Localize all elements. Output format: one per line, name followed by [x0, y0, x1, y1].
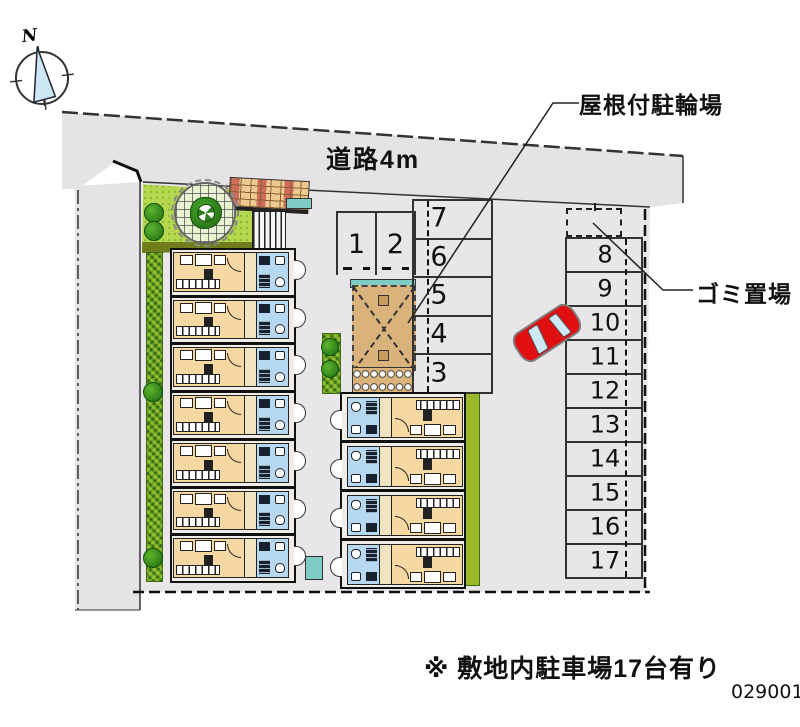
- unit-furniture: [195, 254, 212, 266]
- garbage-area: [566, 208, 622, 237]
- unit-furniture: [214, 494, 226, 504]
- pergola-tree-circle: [174, 182, 236, 244]
- bath-fixture: [259, 542, 270, 551]
- parking-stall-number: 4: [422, 318, 456, 349]
- parking-stall-number: 5: [422, 280, 456, 311]
- toilet-icon: [275, 420, 285, 430]
- parking-stall: 17: [567, 543, 641, 577]
- unit-bathroom: [256, 252, 289, 292]
- unit-main-room: [391, 495, 463, 536]
- unit-kitchen-counter: [176, 422, 220, 432]
- unit-bathroom: [347, 397, 380, 438]
- unit-furniture: [195, 445, 212, 457]
- bath-fixture: [366, 474, 377, 483]
- parking-stall: 7: [414, 201, 491, 238]
- unit-furniture: [423, 409, 432, 421]
- bush-icon: [143, 382, 163, 402]
- parking-note: ※ 敷地内駐車場17台有り: [424, 649, 721, 685]
- apartment-unit: [342, 538, 464, 587]
- sink-icon: [351, 572, 361, 581]
- unit-main-room: [173, 252, 245, 292]
- apartment-unit: [342, 489, 464, 538]
- bath-fixture: [366, 572, 377, 581]
- parking-stall: 8: [567, 239, 641, 271]
- garbage-label: ゴミ置場: [696, 275, 792, 309]
- parking-stall-number: 11: [589, 342, 621, 370]
- unit-closet: [379, 397, 392, 438]
- unit-main-room: [173, 443, 245, 483]
- unit-kitchen-counter: [176, 517, 220, 527]
- unit-closet: [379, 544, 392, 585]
- parking-stall-number: 7: [422, 203, 456, 234]
- unit-main-room: [173, 347, 245, 387]
- parking-column-3-7: 76543: [412, 199, 493, 394]
- unit-door-arc: [395, 467, 409, 481]
- unit-furniture: [214, 255, 226, 265]
- unit-main-room: [391, 544, 463, 585]
- toilet-icon: [275, 515, 285, 525]
- unit-door-arc: [227, 401, 241, 415]
- bath-fixture: [259, 465, 270, 479]
- parking-stall-number: 8: [589, 240, 621, 268]
- side-road-surface: [75, 182, 140, 610]
- utility-box: [286, 198, 312, 209]
- building-units-wrapper: [342, 394, 464, 587]
- unit-main-room: [391, 397, 463, 438]
- sink-icon: [351, 474, 361, 483]
- unit-kitchen-counter: [416, 498, 460, 508]
- sink-icon: [275, 447, 285, 456]
- bath-fixture: [259, 399, 270, 408]
- parking-stall: 13: [567, 407, 641, 441]
- unit-bathroom: [256, 395, 289, 435]
- sink-icon: [351, 425, 361, 434]
- unit-furniture: [443, 425, 456, 435]
- unit-door-arc: [227, 497, 241, 511]
- car-windshield-icon: [527, 324, 549, 355]
- parking-stall-number: 12: [589, 376, 621, 404]
- unit-furniture: [424, 522, 441, 534]
- bath-fixture: [259, 447, 270, 456]
- toilet-icon: [351, 549, 361, 559]
- bath-fixture: [259, 351, 270, 360]
- parking-stall-number: 16: [589, 512, 621, 540]
- stairs: [252, 211, 286, 253]
- unit-furniture: [180, 541, 193, 551]
- apartment-unit: [172, 489, 294, 537]
- parking-stall-number: 2: [377, 229, 414, 260]
- bush-icon: [321, 360, 339, 378]
- unit-bathroom: [256, 491, 289, 531]
- parking-stall: 2: [375, 213, 414, 275]
- unit-furniture: [214, 350, 226, 360]
- toilet-icon: [275, 324, 285, 334]
- unit-bathroom: [347, 446, 380, 487]
- parking-row-1-2: 12: [336, 211, 416, 275]
- unit-closet: [379, 446, 392, 487]
- bath-fixture: [366, 523, 377, 532]
- unit-furniture: [410, 572, 422, 582]
- apartment-unit: [172, 345, 294, 393]
- parking-stall-number: 13: [589, 410, 621, 438]
- bath-fixture: [366, 401, 377, 415]
- unit-furniture: [180, 446, 193, 456]
- sink-icon: [275, 351, 285, 360]
- bath-fixture: [259, 512, 270, 526]
- covered-bike-parking: [352, 285, 416, 371]
- hedge-left: [146, 252, 163, 582]
- parking-stall-number: 15: [589, 478, 621, 506]
- unit-furniture: [180, 255, 193, 265]
- apartment-building-left: [170, 248, 296, 583]
- toilet-icon: [351, 451, 361, 461]
- utility-box: [305, 556, 323, 580]
- sink-icon: [275, 304, 285, 313]
- bike-parking-label: 屋根付駐輪場: [579, 86, 723, 120]
- parking-stall-number: 3: [422, 357, 456, 388]
- unit-furniture: [180, 303, 193, 313]
- bath-fixture: [366, 450, 377, 464]
- unit-bathroom: [347, 495, 380, 536]
- unit-door-arc: [227, 353, 241, 367]
- bush-icon: [144, 203, 164, 223]
- parking-stall: 5: [414, 276, 491, 315]
- unit-furniture: [180, 398, 193, 408]
- bath-fixture: [259, 369, 270, 383]
- unit-bathroom: [256, 347, 289, 387]
- tree-center-icon: [197, 204, 215, 222]
- unit-furniture: [214, 446, 226, 456]
- parking-stall-number: 1: [338, 229, 375, 260]
- tree-icon: [190, 197, 222, 229]
- unit-furniture: [410, 425, 422, 435]
- parking-stall: 16: [567, 509, 641, 543]
- north-compass: N: [4, 21, 78, 113]
- unit-door-arc: [227, 544, 241, 558]
- bath-fixture: [259, 304, 270, 313]
- unit-furniture: [443, 474, 456, 484]
- unit-furniture: [423, 507, 432, 519]
- parking-stall-number: 6: [422, 241, 456, 272]
- roof-post-icon: [378, 295, 389, 306]
- unit-furniture: [214, 398, 226, 408]
- apartment-unit: [172, 298, 294, 346]
- bath-fixture: [259, 256, 270, 265]
- parking-stall: 12: [567, 373, 641, 407]
- apartment-unit: [342, 394, 464, 440]
- parking-stall: 11: [567, 339, 641, 373]
- roof-post-icon: [378, 350, 389, 361]
- unit-door-arc: [395, 516, 409, 530]
- parking-stall-number: 10: [589, 308, 621, 336]
- bush-icon: [321, 338, 339, 356]
- sink-icon: [275, 495, 285, 504]
- bath-fixture: [259, 274, 270, 288]
- road-label: 道路4m: [326, 140, 420, 176]
- unit-door-arc: [227, 258, 241, 272]
- car-rear-window-icon: [548, 313, 572, 338]
- bath-fixture: [366, 499, 377, 513]
- unit-main-room: [391, 446, 463, 487]
- unit-furniture: [410, 523, 422, 533]
- unit-furniture: [424, 424, 441, 436]
- unit-furniture: [195, 397, 212, 409]
- apartment-building-center: [340, 392, 466, 589]
- bath-fixture: [259, 417, 270, 431]
- toilet-icon: [275, 372, 285, 382]
- sink-icon: [275, 256, 285, 265]
- site-plan: N 12 76543 891011121314151617: [0, 0, 800, 727]
- sink-icon: [275, 542, 285, 551]
- unit-main-room: [173, 395, 245, 435]
- unit-furniture: [195, 349, 212, 361]
- parking-stall: 15: [567, 475, 641, 509]
- parking-stall: 9: [567, 271, 641, 305]
- unit-bathroom: [256, 300, 289, 340]
- unit-bathroom: [256, 443, 289, 483]
- unit-kitchen-counter: [416, 547, 460, 557]
- unit-furniture: [195, 493, 212, 505]
- parking-column-8-17: 891011121314151617: [565, 237, 643, 579]
- toilet-icon: [351, 500, 361, 510]
- apartment-unit: [172, 393, 294, 441]
- bush-icon: [144, 221, 164, 241]
- unit-furniture: [214, 541, 226, 551]
- toilet-icon: [351, 402, 361, 412]
- unit-furniture: [443, 572, 456, 582]
- bath-fixture: [259, 495, 270, 504]
- bath-fixture: [366, 425, 377, 434]
- bath-fixture: [259, 321, 270, 335]
- unit-kitchen-counter: [176, 374, 220, 384]
- apartment-unit: [342, 440, 464, 489]
- unit-furniture: [424, 571, 441, 583]
- unit-main-room: [173, 300, 245, 340]
- apartment-unit: [172, 536, 294, 581]
- unit-closet: [379, 495, 392, 536]
- unit-furniture: [423, 556, 432, 568]
- parking-stall: 3: [414, 353, 491, 392]
- unit-kitchen-counter: [416, 449, 460, 459]
- unit-furniture: [410, 474, 422, 484]
- unit-furniture: [443, 523, 456, 533]
- unit-bathroom: [256, 538, 289, 578]
- unit-furniture: [214, 303, 226, 313]
- toilet-icon: [275, 277, 285, 287]
- parking-stall-number: 9: [589, 274, 621, 302]
- parking-stall: 6: [414, 238, 491, 277]
- unit-door-arc: [395, 565, 409, 579]
- unit-kitchen-counter: [176, 326, 220, 336]
- unit-furniture: [424, 473, 441, 485]
- unit-furniture: [180, 494, 193, 504]
- unit-furniture: [180, 350, 193, 360]
- parking-stall: 4: [414, 315, 491, 354]
- parking-stall: 1: [338, 213, 375, 275]
- bath-fixture: [366, 548, 377, 562]
- garbage-tick: [594, 203, 596, 211]
- unit-kitchen-counter: [176, 470, 220, 480]
- unit-furniture: [195, 540, 212, 552]
- unit-furniture: [423, 458, 432, 470]
- parking-stall: 14: [567, 441, 641, 475]
- unit-main-room: [173, 538, 245, 578]
- sink-icon: [351, 523, 361, 532]
- parking-stall-number: 14: [589, 444, 621, 472]
- unit-main-room: [173, 491, 245, 531]
- compass-north-label: N: [20, 25, 40, 47]
- bike-rack: [352, 367, 414, 395]
- apartment-unit: [172, 441, 294, 489]
- parking-stall-number: 17: [589, 546, 621, 574]
- toilet-icon: [275, 563, 285, 573]
- bath-fixture: [259, 560, 270, 574]
- unit-kitchen-counter: [176, 565, 220, 575]
- unit-bathroom: [347, 544, 380, 585]
- sink-icon: [275, 399, 285, 408]
- toilet-icon: [275, 468, 285, 478]
- unit-kitchen-counter: [416, 400, 460, 410]
- unit-door-arc: [395, 418, 409, 432]
- unit-furniture: [195, 302, 212, 314]
- plan-code: 029001: [731, 681, 800, 703]
- unit-door-arc: [227, 449, 241, 463]
- bush-icon: [143, 548, 163, 568]
- unit-door-arc: [227, 306, 241, 320]
- unit-kitchen-counter: [176, 279, 220, 289]
- apartment-unit: [172, 250, 294, 298]
